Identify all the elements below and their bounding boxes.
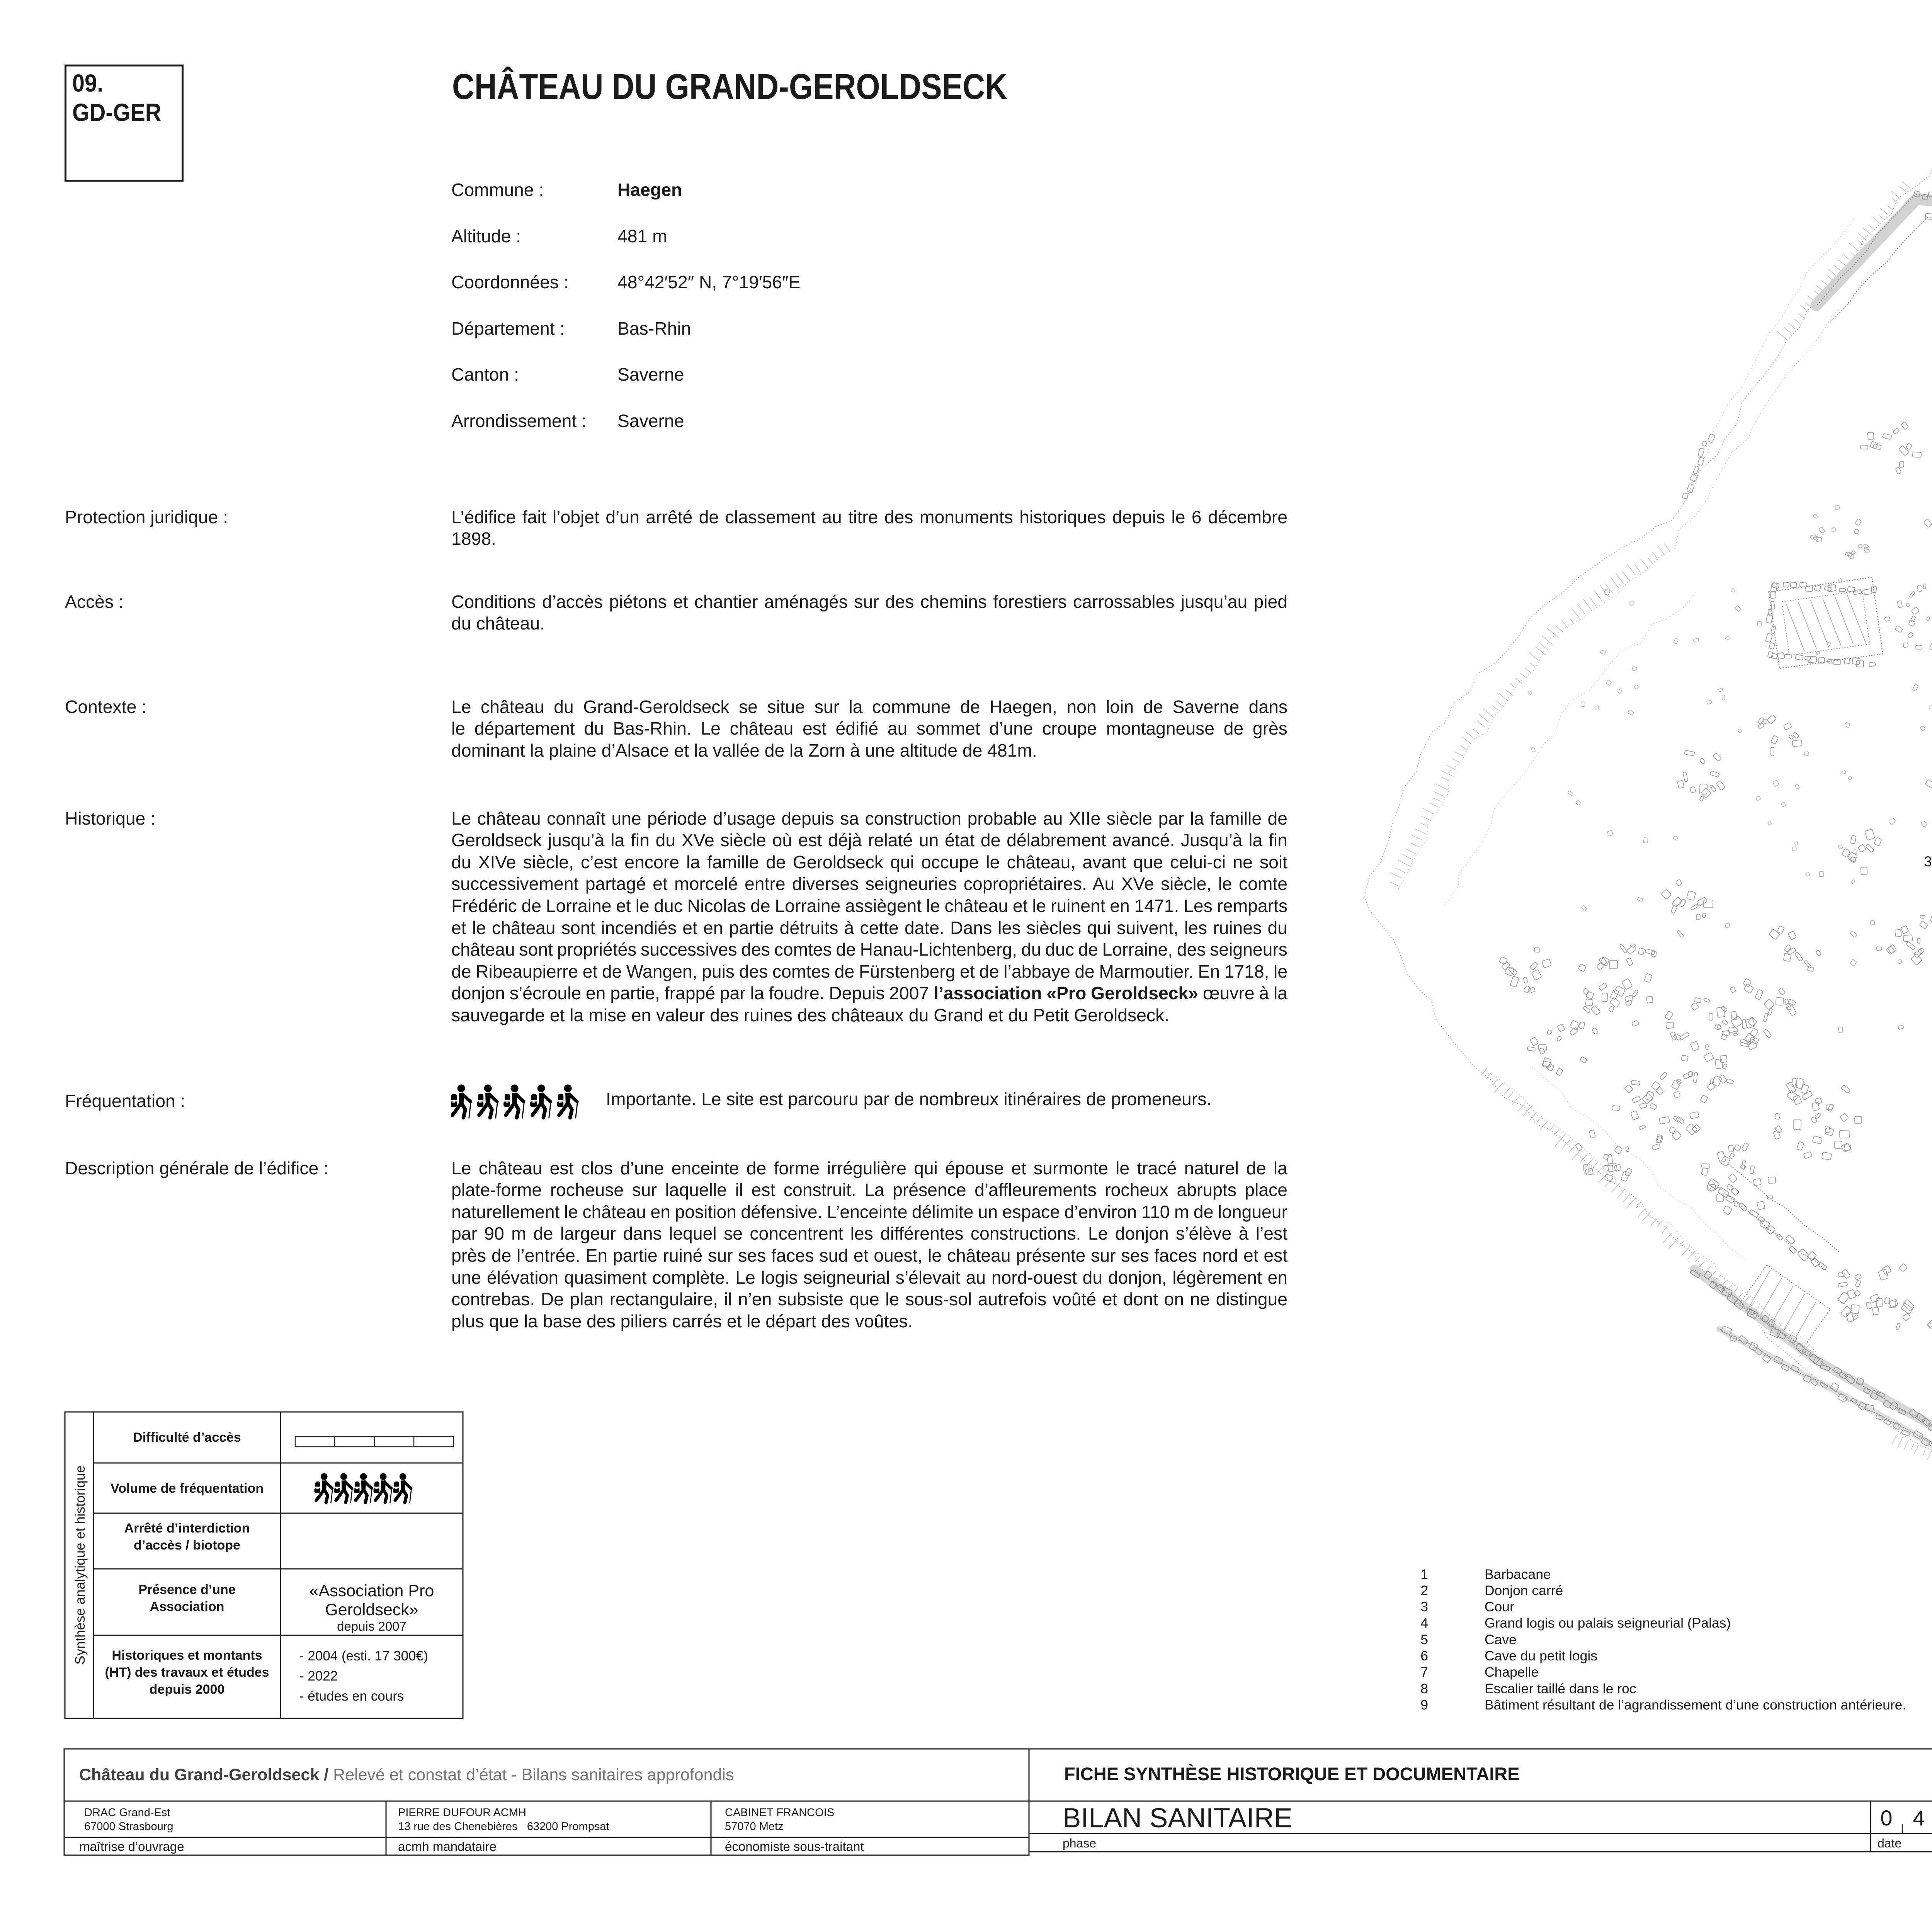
svg-text:PIERRE DUFOUR ACMH: PIERRE DUFOUR ACMH [398,1806,526,1819]
svg-text:économiste sous-traitant: économiste sous-traitant [725,1839,864,1854]
svg-text:phase: phase [1063,1836,1096,1850]
svg-text:67000 Strasbourg: 67000 Strasbourg [84,1820,173,1833]
svg-text:CABINET FRANCOIS: CABINET FRANCOIS [725,1806,834,1819]
svg-text:DRAC Grand-Est: DRAC Grand-Est [84,1806,170,1819]
svg-text:Château du Grand-Geroldseck /: Château du Grand-Geroldseck / Relevé et … [79,1766,734,1784]
svg-text:FICHE SYNTHÈSE HISTORIQUE ET D: FICHE SYNTHÈSE HISTORIQUE ET DOCUMENTAIR… [1064,1764,1520,1784]
svg-text:13 rue des Chenebières 63200: 13 rue des Chenebières 63200 Prompsat [398,1820,609,1833]
svg-text:3: 3 [1924,854,1932,869]
svg-text:acmh mandataire: acmh mandataire [398,1839,497,1854]
svg-text:date: date [1878,1836,1901,1850]
svg-text:4: 4 [1913,1806,1925,1830]
svg-text:57070 Metz: 57070 Metz [725,1820,784,1833]
svg-text:0: 0 [1880,1806,1892,1830]
svg-text:maîtrise d’ouvrage: maîtrise d’ouvrage [79,1839,184,1854]
svg-text:BILAN SANITAIRE: BILAN SANITAIRE [1063,1803,1292,1834]
